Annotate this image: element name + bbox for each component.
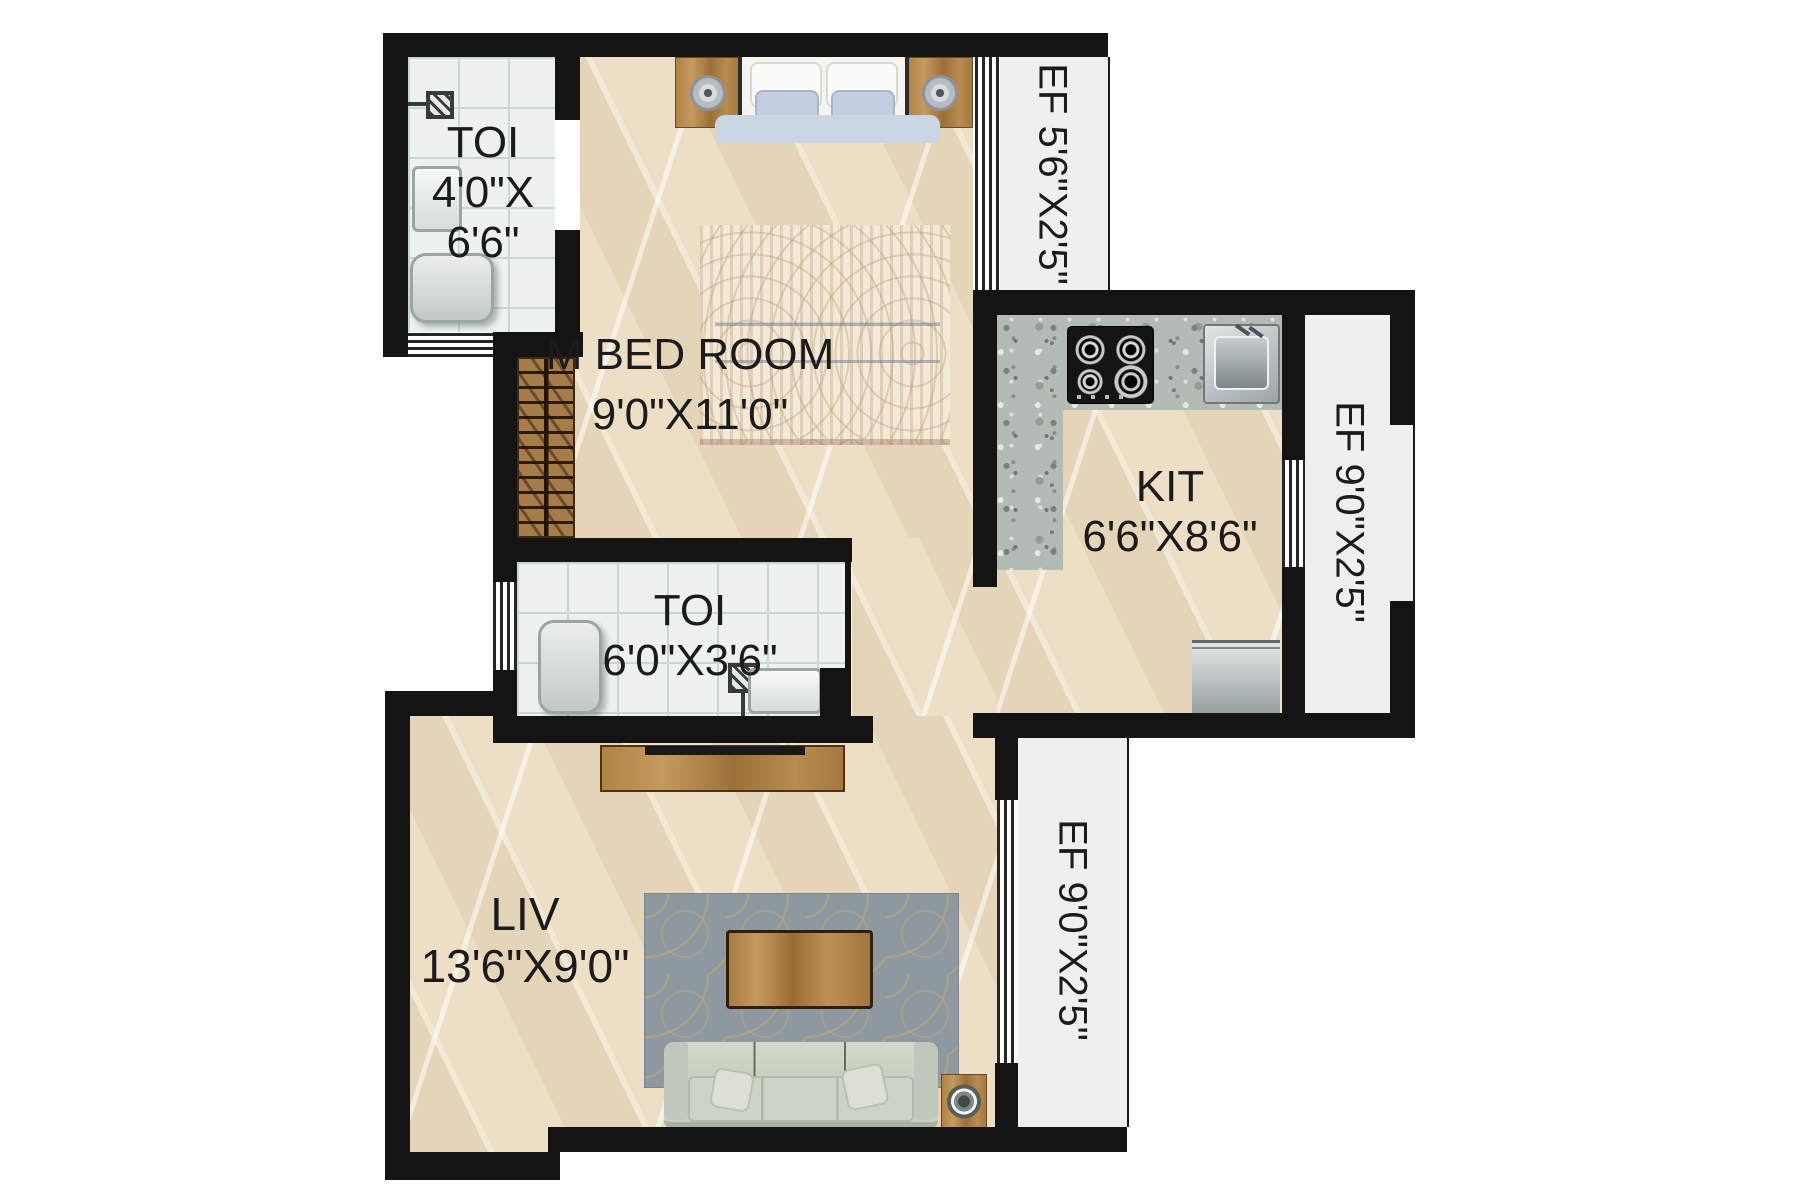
kitchen-dim: 6'6"X8'6" [1055,512,1285,562]
label-toilet-top: TOI 4'0"X 6'6" [408,118,558,268]
kitchen-name: KIT [1055,462,1285,512]
sofa-arm-left [664,1042,688,1120]
ef-area-right-bay [1390,425,1415,601]
window-living-ef [997,800,1018,1063]
wall-ef-bottom-upper [995,738,1018,800]
sofa-pillow-left [709,1067,755,1113]
sofa-back [664,1042,938,1078]
shower-arm-toilet-mid [741,693,745,716]
wall-toilet-mid-bottom [493,716,873,743]
label-ef-bottom: EF 9'0"X2'5" [1050,819,1095,1041]
tv-icon [645,746,805,755]
toilet-top-dim1: 4'0"X [408,168,558,218]
toilet-mid-dim: 6'0"X3'6" [560,636,820,686]
washing-machine [1192,640,1280,713]
wall-kitchen-bottom [973,713,1415,738]
wall-toilet-mid-stub [820,668,845,716]
wall-toilet-mid-top [493,538,852,562]
wall-ef-right-lower [1390,601,1415,713]
living-name: LIV [400,888,650,940]
shower-arm-toilet-top [408,102,426,106]
wall-ef-right-upper [1390,290,1415,425]
sofa-pillow-right [840,1062,890,1112]
sofa-arm-right [914,1042,938,1120]
window-toilet-mid [493,582,517,670]
master-bedroom-name: M BED ROOM [510,330,870,380]
coffee-table [726,930,873,1009]
living-dim: 13'6"X9'0" [400,940,650,992]
wall-kitchen-right-upper [1282,315,1305,460]
kitchen-counter-left [997,410,1063,570]
floor-plan: TOI 4'0"X 6'6" M BED ROOM 9'0"X11'0" KIT… [0,0,1800,1192]
label-master-bedroom: M BED ROOM 9'0"X11'0" [510,330,870,440]
wall-ef-bottom-lower [995,1063,1018,1127]
gas-stove-icon [1067,326,1154,404]
label-kitchen: KIT 6'6"X8'6" [1055,462,1285,562]
wall-living-bottom-right [548,1127,1127,1152]
label-ef-right: EF 9'0"X2'5" [1327,401,1372,623]
window-kitchen-ef [1282,460,1305,567]
kitchen-sink-icon [1203,324,1280,404]
label-living: LIV 13'6"X9'0" [400,888,650,993]
wall-living-bottom-left [385,1152,560,1180]
label-toilet-mid: TOI 6'0"X3'6" [560,586,820,686]
shower-icon-toilet-top [426,91,454,119]
toilet-top-name: TOI [408,118,558,168]
master-bedroom-dim: 9'0"X11'0" [510,390,870,440]
toilet-top-dim2: 6'6" [408,218,558,268]
side-table-with-plant [941,1074,987,1132]
wall-top [383,33,1108,57]
wall-kitchen-left [973,315,997,587]
wall-toilet-mid-right [845,562,851,716]
sofa [664,1042,938,1130]
window-bedroom-ef [975,57,1000,290]
label-ef-top: EF 5'6"X2'5" [1030,63,1075,285]
wall-kitchen-top [973,290,1415,315]
door-toilet-top [555,120,580,230]
window-toilet-top [408,332,493,357]
toilet-mid-name: TOI [560,586,820,636]
wall-left-upper [383,33,408,357]
wall-kitchen-right-lower [1282,567,1305,713]
